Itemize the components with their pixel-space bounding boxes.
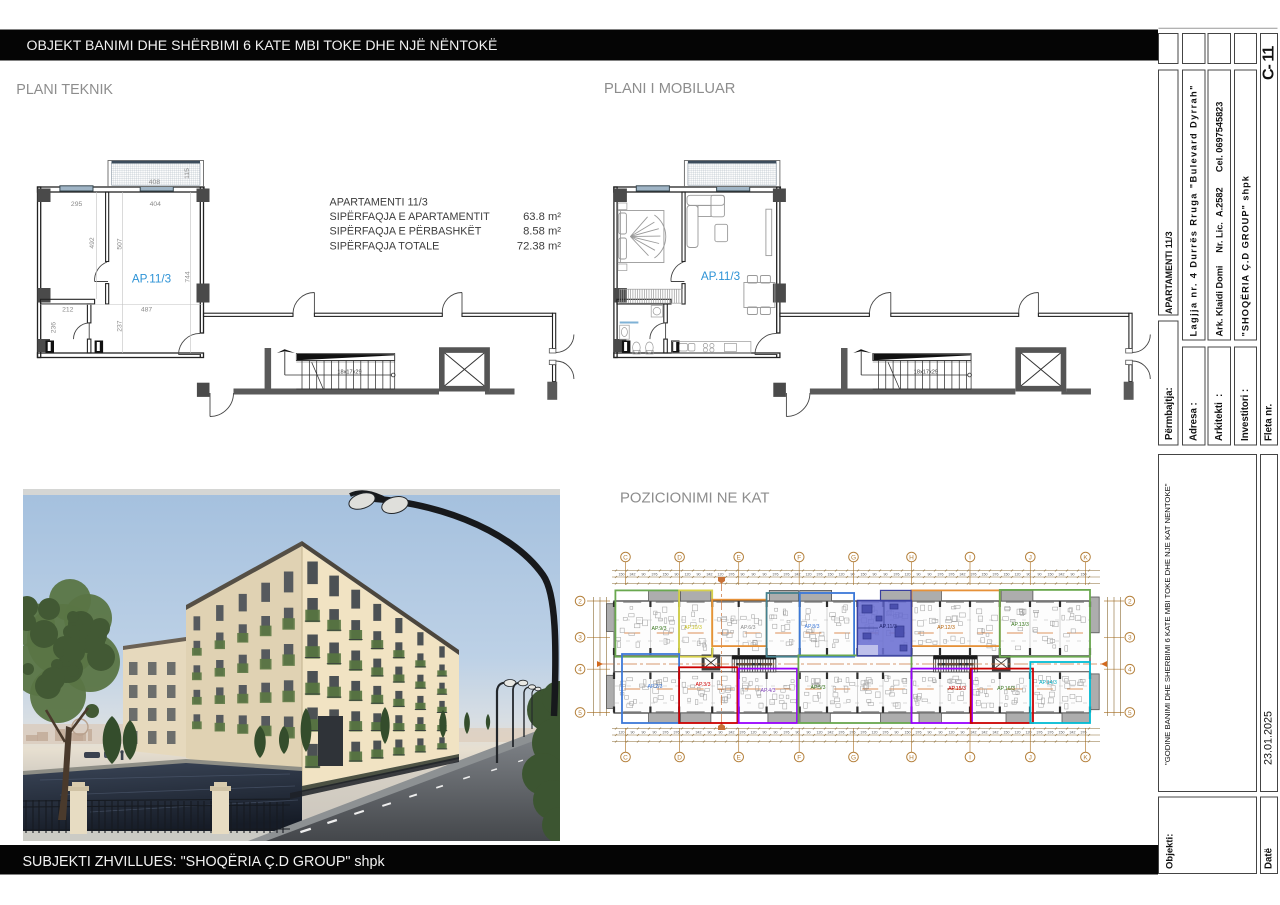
svg-text:I: I: [969, 554, 971, 561]
svg-text:408: 408: [149, 179, 161, 186]
svg-text:120: 120: [718, 573, 724, 577]
svg-text:120: 120: [817, 731, 823, 735]
svg-text:744: 744: [184, 271, 191, 283]
svg-text:295: 295: [71, 201, 83, 208]
svg-text:90: 90: [873, 573, 877, 577]
svg-text:376: 376: [861, 731, 867, 735]
svg-text:342: 342: [1070, 731, 1076, 735]
svg-text:SIPËRFAQJA E APARTAMENTIT: SIPËRFAQJA E APARTAMENTIT: [330, 211, 491, 223]
svg-text:342: 342: [993, 731, 999, 735]
svg-text:90: 90: [631, 731, 635, 735]
svg-text:90: 90: [763, 731, 767, 735]
svg-text:AP.14/3: AP.14/3: [1039, 680, 1057, 686]
svg-text:Datë: Datë: [1264, 847, 1275, 869]
svg-text:150: 150: [1004, 731, 1010, 735]
svg-text:342: 342: [828, 731, 834, 735]
svg-text:120: 120: [1015, 731, 1021, 735]
svg-text:376: 376: [740, 731, 746, 735]
svg-text:376: 376: [916, 731, 922, 735]
svg-text:AP.10/3: AP.10/3: [684, 625, 702, 631]
svg-text:150: 150: [905, 731, 911, 735]
svg-text:90: 90: [675, 573, 679, 577]
svg-text:G: G: [851, 754, 856, 761]
svg-text:Investitori :: Investitori :: [1240, 389, 1251, 441]
svg-text:90: 90: [961, 731, 965, 735]
svg-text:3: 3: [1128, 635, 1132, 642]
svg-text:Lagjja nr. 4 Durrës Rruga "Bul: Lagjja nr. 4 Durrës Rruga "Bulevard Dyrr…: [1189, 84, 1199, 336]
svg-text:K: K: [1083, 754, 1088, 761]
svg-text:AP.9/3: AP.9/3: [652, 626, 667, 632]
svg-text:487: 487: [141, 307, 153, 314]
svg-text:AP.11/3: AP.11/3: [701, 270, 740, 283]
svg-text:90: 90: [884, 573, 888, 577]
svg-text:90: 90: [807, 731, 811, 735]
svg-text:E: E: [737, 754, 742, 761]
svg-text:342: 342: [982, 731, 988, 735]
svg-text:18x17x29: 18x17x29: [337, 370, 361, 376]
svg-text:376: 376: [784, 573, 790, 577]
svg-text:72.38 m²: 72.38 m²: [517, 240, 561, 252]
svg-text:342: 342: [971, 731, 977, 735]
svg-text:AP.3/3: AP.3/3: [696, 682, 711, 688]
svg-text:4: 4: [578, 667, 582, 674]
svg-text:Arkitekti :: Arkitekti :: [1214, 394, 1225, 441]
svg-text:120: 120: [1015, 573, 1021, 577]
svg-text:C- 11: C- 11: [1261, 46, 1278, 80]
svg-text:23.01.2025: 23.01.2025: [1263, 711, 1275, 765]
svg-text:120: 120: [905, 573, 911, 577]
svg-text:120: 120: [872, 731, 878, 735]
svg-text:J: J: [1029, 754, 1032, 761]
svg-text:492: 492: [89, 237, 96, 249]
svg-text:5: 5: [1128, 710, 1132, 717]
svg-text:342: 342: [729, 731, 735, 735]
svg-text:150: 150: [982, 573, 988, 577]
svg-text:376: 376: [949, 573, 955, 577]
svg-text:F: F: [797, 554, 801, 561]
svg-text:90: 90: [752, 573, 756, 577]
svg-text:90: 90: [653, 731, 657, 735]
svg-text:H: H: [909, 754, 914, 761]
svg-text:I: I: [969, 754, 971, 761]
svg-text:150: 150: [861, 573, 867, 577]
svg-text:342: 342: [795, 573, 801, 577]
svg-text:90: 90: [642, 731, 646, 735]
svg-text:150: 150: [1059, 731, 1065, 735]
svg-text:90: 90: [719, 731, 723, 735]
svg-text:120: 120: [839, 573, 845, 577]
svg-text:507: 507: [117, 238, 124, 250]
svg-text:120: 120: [619, 731, 625, 735]
svg-text:K: K: [1083, 554, 1088, 561]
svg-text:C: C: [623, 754, 628, 761]
svg-text:120: 120: [685, 573, 691, 577]
svg-text:SUBJEKTI ZHVILLUES: "SHOQËRIA: SUBJEKTI ZHVILLUES: "SHOQËRIA Ç.D GROUP"…: [23, 853, 386, 870]
svg-text:90: 90: [741, 573, 745, 577]
svg-text:120: 120: [949, 731, 955, 735]
svg-text:90: 90: [763, 573, 767, 577]
svg-text:AP.11/3: AP.11/3: [132, 273, 171, 286]
svg-text:AP.16/3: AP.16/3: [997, 686, 1015, 692]
svg-text:376: 376: [993, 573, 999, 577]
svg-text:18x17x29: 18x17x29: [914, 370, 938, 376]
svg-text:PLANI I MOBILUAR: PLANI I MOBILUAR: [604, 81, 735, 97]
svg-text:150: 150: [1081, 573, 1087, 577]
svg-text:120: 120: [806, 573, 812, 577]
svg-text:90: 90: [1071, 573, 1075, 577]
svg-text:2: 2: [1128, 598, 1132, 605]
svg-text:D: D: [677, 754, 682, 761]
svg-text:APARTAMENTI 11/3: APARTAMENTI 11/3: [330, 196, 428, 208]
svg-text:APARTAMENTI 11/3: APARTAMENTI 11/3: [1164, 231, 1174, 314]
svg-text:376: 376: [850, 731, 856, 735]
svg-text:POZICIONIMI NE KAT: POZICIONIMI NE KAT: [620, 491, 769, 507]
svg-text:C: C: [623, 554, 628, 561]
svg-text:90: 90: [917, 573, 921, 577]
svg-text:Ark. Klaidi Domi Nr. Lic.: Ark. Klaidi Domi Nr. Lic. A.2582 Cel. 06…: [1215, 102, 1225, 337]
svg-text:OBJEKT BANIMI DHE SHËRBIMI 6 K: OBJEKT BANIMI DHE SHËRBIMI 6 KATE MBI TO…: [27, 37, 498, 53]
svg-text:150: 150: [828, 573, 834, 577]
svg-text:PLANI TEKNIK: PLANI TEKNIK: [16, 82, 113, 98]
svg-text:AP.13/3: AP.13/3: [1011, 622, 1029, 628]
svg-text:90: 90: [1038, 573, 1042, 577]
svg-text:90: 90: [939, 731, 943, 735]
svg-text:AP.6/3: AP.6/3: [741, 625, 756, 631]
svg-text:90: 90: [796, 731, 800, 735]
svg-text:AP.5/3: AP.5/3: [811, 685, 826, 691]
svg-text:AP.15/3: AP.15/3: [948, 686, 966, 692]
svg-text:Përmbajtja:: Përmbajtja:: [1164, 387, 1175, 440]
svg-text:90: 90: [895, 731, 899, 735]
svg-text:90: 90: [928, 573, 932, 577]
svg-text:2: 2: [578, 598, 582, 605]
svg-text:342: 342: [1059, 573, 1065, 577]
svg-text:342: 342: [960, 573, 966, 577]
svg-text:120: 120: [1026, 731, 1032, 735]
svg-text:90: 90: [697, 573, 701, 577]
svg-text:376: 376: [1037, 731, 1043, 735]
svg-text:90: 90: [708, 731, 712, 735]
svg-text:"SHOQËRIA Ç.D GROUP" shpk: "SHOQËRIA Ç.D GROUP" shpk: [1241, 175, 1251, 336]
svg-text:376: 376: [839, 731, 845, 735]
svg-text:150: 150: [1004, 573, 1010, 577]
svg-text:AP.12/3: AP.12/3: [937, 625, 955, 631]
svg-text:4: 4: [1128, 667, 1132, 674]
svg-text:SIPËRFAQJA E PËRBASHKËT: SIPËRFAQJA E PËRBASHKËT: [330, 226, 482, 238]
svg-text:G: G: [851, 554, 856, 561]
svg-text:236: 236: [51, 322, 58, 334]
svg-text:150: 150: [619, 573, 625, 577]
svg-text:90: 90: [1027, 573, 1031, 577]
svg-text:376: 376: [784, 731, 790, 735]
svg-text:115: 115: [184, 168, 191, 179]
svg-text:376: 376: [773, 573, 779, 577]
svg-text:342: 342: [630, 573, 636, 577]
svg-text:SIPËRFAQJA TOTALE: SIPËRFAQJA TOTALE: [330, 240, 440, 252]
svg-text:376: 376: [938, 573, 944, 577]
svg-text:376: 376: [883, 731, 889, 735]
svg-text:120: 120: [751, 731, 757, 735]
svg-text:E: E: [737, 554, 742, 561]
svg-text:342: 342: [707, 573, 713, 577]
svg-text:AP.4/3: AP.4/3: [761, 688, 776, 694]
svg-text:376: 376: [894, 573, 900, 577]
svg-text:Objekti:: Objekti:: [1165, 834, 1176, 869]
svg-text:"GODINE BANIMI DHE SHERBIMI 6: "GODINE BANIMI DHE SHERBIMI 6 KATE MBI T…: [1163, 483, 1172, 765]
svg-text:90: 90: [928, 731, 932, 735]
svg-text:376: 376: [729, 573, 735, 577]
svg-text:376: 376: [971, 573, 977, 577]
svg-text:376: 376: [1081, 731, 1087, 735]
svg-text:376: 376: [663, 731, 669, 735]
svg-text:3: 3: [578, 635, 582, 642]
svg-text:342: 342: [696, 731, 702, 735]
svg-text:5: 5: [578, 710, 582, 717]
svg-text:376: 376: [674, 731, 680, 735]
svg-text:F: F: [797, 754, 801, 761]
svg-text:H: H: [909, 554, 914, 561]
svg-text:J: J: [1029, 554, 1032, 561]
svg-text:376: 376: [817, 573, 823, 577]
svg-text:90: 90: [642, 573, 646, 577]
svg-text:90: 90: [686, 731, 690, 735]
svg-text:Fleta nr.: Fleta nr.: [1264, 404, 1275, 441]
svg-text:90: 90: [774, 731, 778, 735]
svg-text:AP.2/3: AP.2/3: [648, 684, 663, 690]
svg-text:150: 150: [1048, 573, 1054, 577]
svg-text:150: 150: [663, 573, 669, 577]
svg-text:237: 237: [117, 320, 124, 332]
svg-text:Adresa :: Adresa :: [1189, 402, 1200, 441]
svg-text:63.8 m²: 63.8 m²: [523, 211, 561, 223]
svg-text:AP.11/3: AP.11/3: [879, 624, 897, 630]
svg-text:90: 90: [851, 573, 855, 577]
svg-text:8.58 m²: 8.58 m²: [523, 226, 561, 238]
svg-text:D: D: [677, 554, 682, 561]
svg-text:AP.8/3: AP.8/3: [805, 624, 820, 630]
svg-text:404: 404: [150, 201, 162, 208]
svg-text:376: 376: [652, 573, 658, 577]
svg-text:212: 212: [62, 307, 74, 314]
svg-text:376: 376: [1048, 731, 1054, 735]
